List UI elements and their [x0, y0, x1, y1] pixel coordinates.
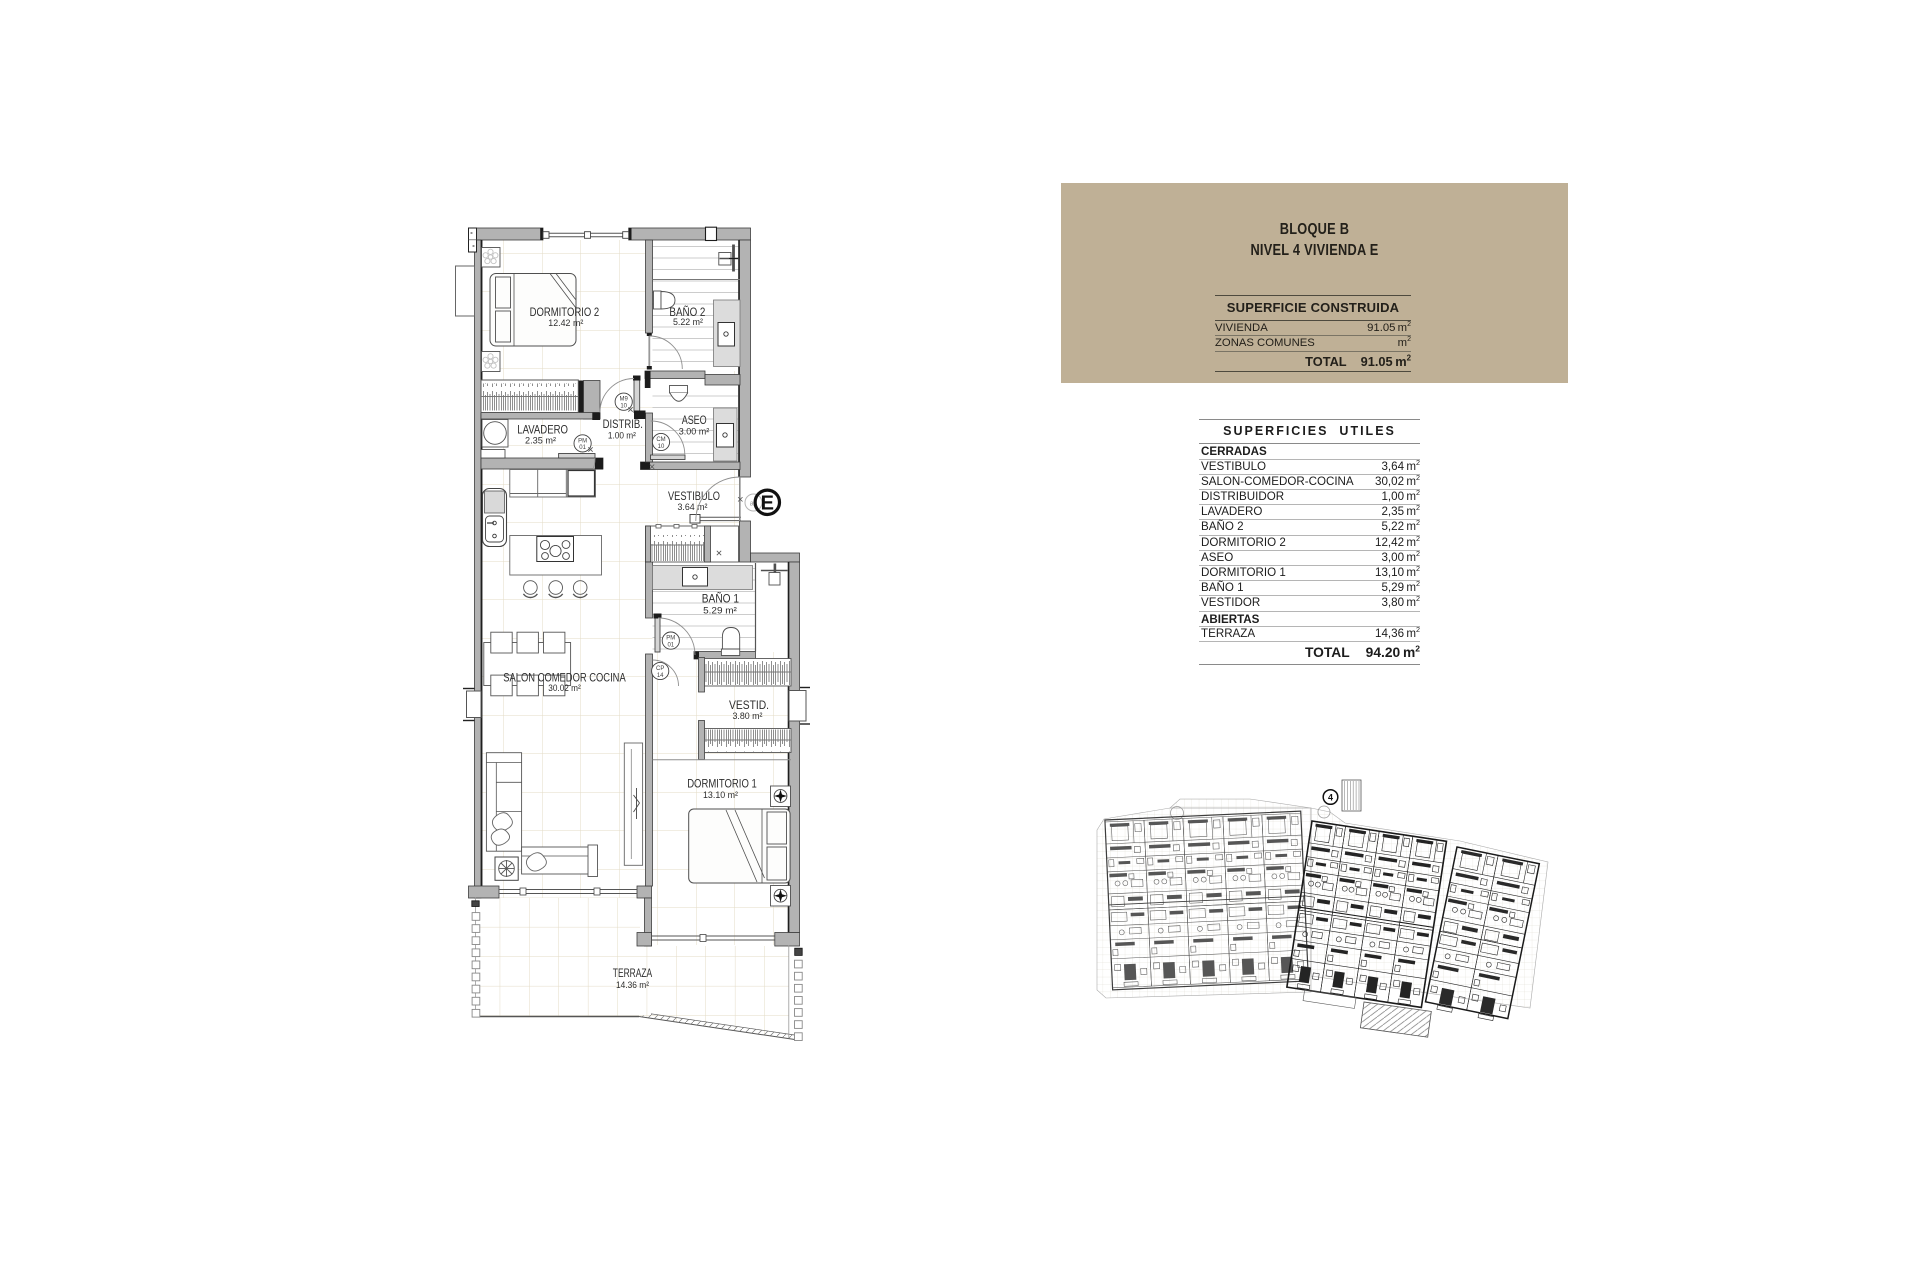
svg-text:M9: M9 [620, 397, 629, 403]
svg-text:12.42 m²: 12.42 m² [548, 318, 583, 328]
svg-text:2.35 m²: 2.35 m² [525, 436, 556, 446]
svg-text:30.02 m²: 30.02 m² [548, 683, 580, 693]
svg-text:5.22 m²: 5.22 m² [673, 317, 703, 327]
svg-text:DISTRIB.: DISTRIB. [603, 417, 643, 431]
svg-text:CP: CP [656, 666, 664, 672]
svg-text:VESTID.: VESTID. [729, 698, 769, 712]
svg-text:3.64 m²: 3.64 m² [678, 502, 708, 512]
svg-text:TERRAZA: TERRAZA [613, 966, 652, 980]
svg-text:3.80 m²: 3.80 m² [733, 711, 763, 721]
svg-text:BAÑO 1: BAÑO 1 [702, 592, 740, 606]
svg-text:01: 01 [667, 642, 674, 648]
svg-text:ASEO: ASEO [682, 413, 707, 427]
svg-text:3.00 m²: 3.00 m² [679, 426, 710, 436]
svg-text:CM: CM [656, 437, 665, 443]
svg-text:E: E [761, 493, 774, 515]
svg-text:PM: PM [666, 636, 675, 642]
svg-text:1.00 m²: 1.00 m² [608, 431, 636, 441]
svg-text:13.10 m²: 13.10 m² [703, 790, 738, 800]
svg-text:DORMITORIO 1: DORMITORIO 1 [687, 777, 757, 791]
svg-text:10: 10 [658, 444, 665, 450]
svg-text:5.29 m²: 5.29 m² [703, 606, 737, 616]
svg-text:PM: PM [578, 438, 587, 444]
svg-text:10: 10 [620, 404, 627, 410]
svg-text:01: 01 [579, 445, 586, 451]
svg-text:14.36 m²: 14.36 m² [616, 980, 649, 990]
svg-text:VESTIBULO: VESTIBULO [668, 489, 720, 503]
svg-text:4: 4 [1328, 793, 1333, 803]
svg-text:14: 14 [657, 673, 664, 679]
svg-text:DORMITORIO 2: DORMITORIO 2 [530, 305, 600, 319]
svg-text:LAVADERO: LAVADERO [517, 422, 568, 436]
